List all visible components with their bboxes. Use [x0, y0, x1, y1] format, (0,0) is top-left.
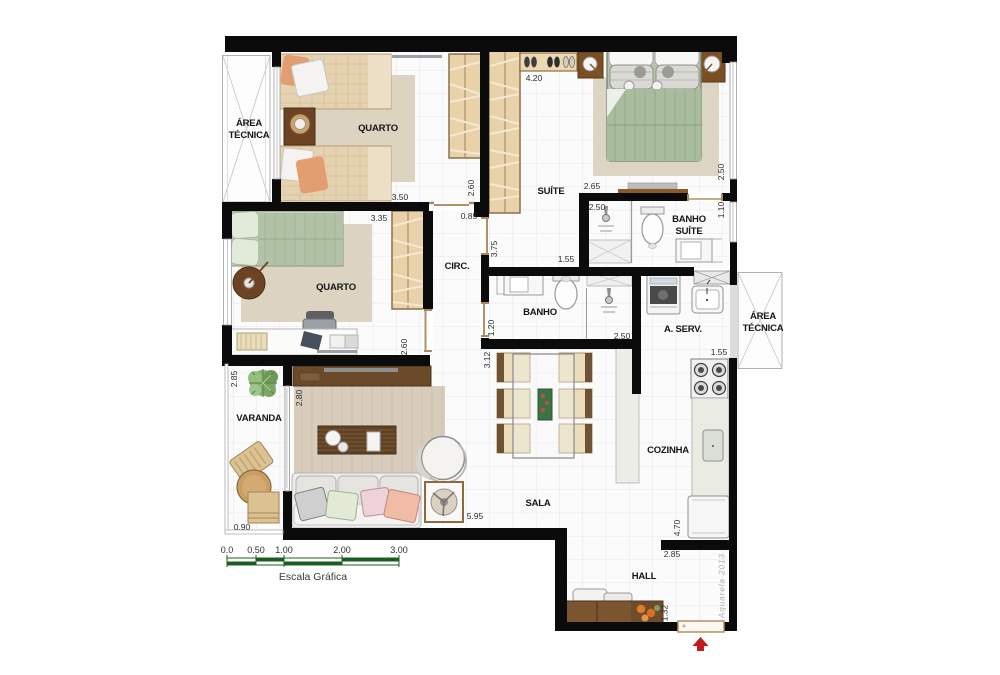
svg-text:2.85: 2.85 — [664, 549, 681, 559]
svg-text:3.00: 3.00 — [390, 545, 408, 555]
svg-text:COZINHA: COZINHA — [647, 445, 689, 456]
svg-text:CIRC.: CIRC. — [445, 261, 470, 272]
svg-text:1.32: 1.32 — [660, 604, 670, 621]
svg-text:2.85: 2.85 — [229, 370, 239, 387]
svg-text:5.95: 5.95 — [467, 511, 484, 521]
svg-text:ÁREA: ÁREA — [236, 118, 262, 129]
svg-text:2.65: 2.65 — [584, 181, 601, 191]
svg-text:0.50: 0.50 — [247, 545, 265, 555]
svg-text:4.20: 4.20 — [526, 73, 543, 83]
svg-text:TÉCNICA: TÉCNICA — [229, 130, 270, 141]
svg-text:1.00: 1.00 — [275, 545, 293, 555]
svg-text:2.60: 2.60 — [466, 179, 476, 196]
svg-text:1.55: 1.55 — [711, 347, 728, 357]
svg-text:4.70: 4.70 — [672, 519, 682, 536]
svg-text:QUARTO: QUARTO — [316, 282, 356, 293]
svg-text:Aquarela 2013: Aquarela 2013 — [718, 553, 727, 619]
svg-text:1.20: 1.20 — [486, 319, 496, 336]
svg-text:0.0: 0.0 — [221, 545, 234, 555]
svg-text:2.80: 2.80 — [294, 389, 304, 406]
svg-text:A. SERV.: A. SERV. — [664, 324, 702, 335]
svg-text:3.35: 3.35 — [371, 213, 388, 223]
svg-text:2.60: 2.60 — [399, 338, 409, 355]
svg-text:SALA: SALA — [525, 498, 550, 509]
svg-text:QUARTO: QUARTO — [358, 123, 398, 134]
svg-text:2.50: 2.50 — [614, 331, 631, 341]
svg-text:3.50: 3.50 — [392, 192, 409, 202]
svg-text:2.00: 2.00 — [333, 545, 351, 555]
svg-text:SUÍTE: SUÍTE — [538, 186, 565, 197]
svg-text:1.10: 1.10 — [716, 201, 726, 218]
svg-text:VARANDA: VARANDA — [236, 413, 282, 424]
svg-text:3.12: 3.12 — [482, 351, 492, 368]
svg-text:2.50: 2.50 — [589, 202, 606, 212]
svg-text:BANHO: BANHO — [523, 307, 557, 318]
svg-text:0.90: 0.90 — [234, 522, 251, 532]
svg-text:SUÍTE: SUÍTE — [676, 226, 703, 237]
svg-text:BANHO: BANHO — [672, 214, 706, 225]
svg-text:2.50: 2.50 — [716, 163, 726, 180]
svg-text:HALL: HALL — [632, 571, 657, 582]
svg-text:0.85: 0.85 — [461, 211, 478, 221]
svg-text:1.55: 1.55 — [558, 254, 575, 264]
svg-text:Escala Gráfica: Escala Gráfica — [279, 571, 347, 583]
svg-text:TÉCNICA: TÉCNICA — [743, 323, 784, 334]
svg-text:ÁREA: ÁREA — [750, 311, 776, 322]
svg-text:3.75: 3.75 — [489, 240, 499, 257]
